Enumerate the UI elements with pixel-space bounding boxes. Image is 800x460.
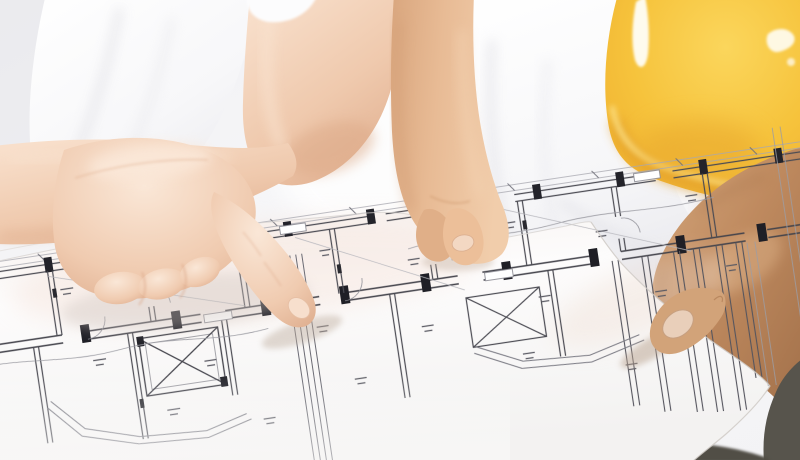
hard-hat-specular-dot <box>787 58 795 66</box>
hard-hat-specular-highlight <box>632 0 648 67</box>
photo-two-people-reviewing-blueprint <box>0 0 800 460</box>
scene-canvas <box>0 0 800 460</box>
paper-focus-falloff <box>0 370 510 460</box>
